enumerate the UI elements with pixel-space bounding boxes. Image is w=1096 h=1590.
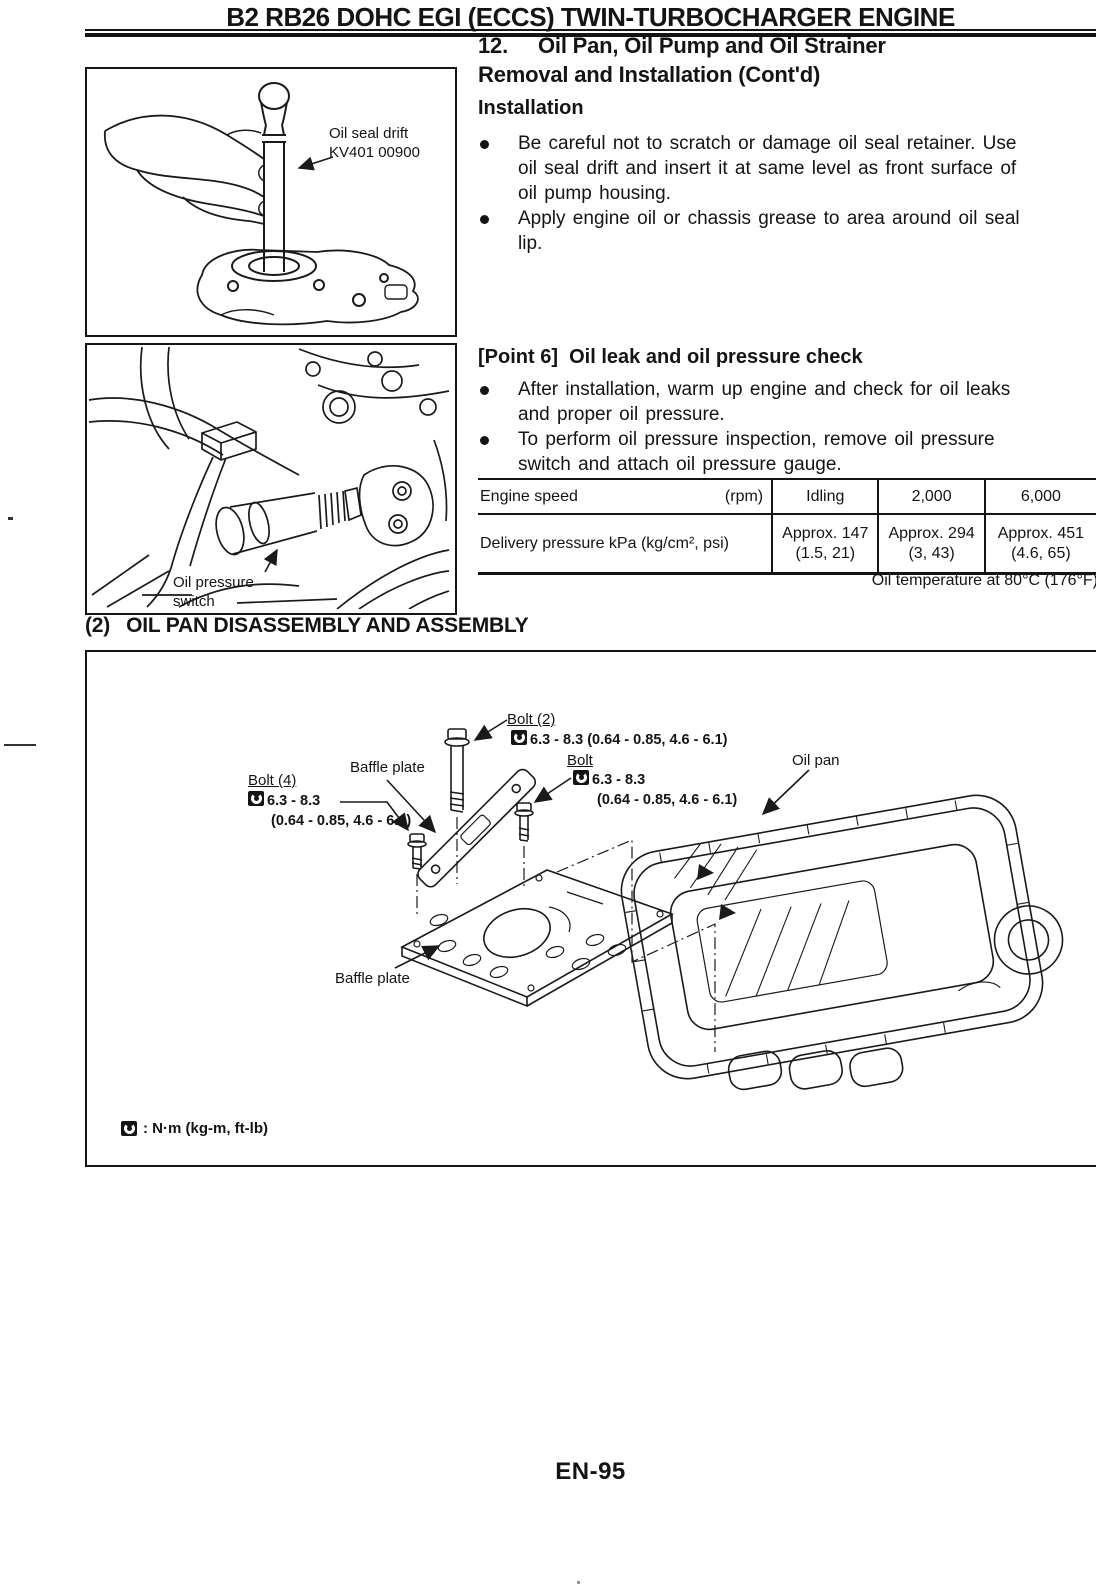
manual-page: B2 RB26 DOHC EGI (ECCS) TWIN-TURBOCHARGE…	[0, 0, 1096, 1590]
baffle-plate-top-label: Baffle plate	[350, 758, 425, 777]
delivery-pressure-label-cell: Delivery pressure kPa (kg/cm², psi)	[478, 515, 771, 572]
bullet-text: After installation, warm up engine and c…	[518, 377, 1096, 427]
oil-pressure-switch-illustration	[87, 345, 451, 609]
torque-icon	[511, 730, 527, 745]
bolt2-label: Bolt (2)	[507, 710, 555, 729]
oil-pressure-table: Engine speed (rpm) Idling 2,000 6,000 De…	[478, 478, 1096, 575]
bolt2-torque-row: 6.3 - 8.3 (0.64 - 0.85, 4.6 - 6.1)	[511, 730, 727, 750]
bullet-icon	[480, 140, 489, 149]
header-rule-thin	[85, 29, 1096, 31]
engine-speed-unit: (rpm)	[725, 487, 763, 507]
figure-oil-seal-drift: Oil seal drift KV401 00900	[85, 67, 457, 337]
margin-mark	[4, 744, 36, 746]
bolt-torque-value-lines: (0.64 - 0.85, 4.6 - 6.1)	[597, 790, 737, 810]
oil-pressure-switch-label: Oil pressure switch	[173, 573, 254, 611]
bolt4-torque-row: 6.3 - 8.3	[248, 791, 320, 811]
torque-legend-text: : N·m (kg-m, ft-lb)	[143, 1120, 268, 1137]
engine-speed-header-cell: Engine speed (rpm)	[478, 480, 771, 513]
bullet-item: To perform oil pressure inspection, remo…	[478, 427, 1096, 477]
assembly-heading-prefix: (2)	[85, 614, 110, 637]
table-header-row: Engine speed (rpm) Idling 2,000 6,000	[478, 480, 1096, 515]
speed-col-2000: 2,000	[877, 480, 983, 513]
pressure-value-6000: Approx. 451 (4.6, 65)	[984, 515, 1096, 572]
bullet-icon	[480, 215, 489, 224]
oil-seal-drift-label: Oil seal drift KV401 00900	[329, 124, 420, 162]
oil-pan-exploded-illustration	[87, 652, 1096, 1161]
torque-icon	[573, 770, 589, 785]
torque-legend: : N·m (kg-m, ft-lb)	[121, 1120, 268, 1137]
margin-mark	[8, 517, 13, 520]
section-title-text: Oil Pan, Oil Pump and Oil Strainer	[538, 33, 886, 58]
bullet-item: After installation, warm up engine and c…	[478, 377, 1096, 427]
bolt-torque-row: 6.3 - 8.3	[573, 770, 645, 790]
bullet-text: Apply engine oil or chassis grease to ar…	[518, 206, 1096, 256]
installation-bullets: Be careful not to scratch or damage oil …	[478, 131, 1096, 256]
assembly-heading-text: OIL PAN DISASSEMBLY AND ASSEMBLY	[126, 614, 528, 637]
table-data-row: Delivery pressure kPa (kg/cm², psi) Appr…	[478, 515, 1096, 572]
pressure-value-2000: Approx. 294 (3, 43)	[877, 515, 983, 572]
installation-heading: Installation	[478, 97, 584, 120]
point6-heading: [Point 6] Oil leak and oil pressure chec…	[478, 346, 863, 369]
point6-label: [Point 6]	[478, 346, 558, 368]
assembly-section-heading: (2)OIL PAN DISASSEMBLY AND ASSEMBLY	[85, 614, 528, 638]
bolt4-torque-value-lines: (0.64 - 0.85, 4.6 - 6.1)	[271, 811, 411, 831]
bolt-torque-value-line1: 6.3 - 8.3	[592, 770, 645, 790]
bolt4-label: Bolt (4)	[248, 771, 296, 790]
section-title-line1: 12.Oil Pan, Oil Pump and Oil Strainer	[478, 33, 886, 59]
torque-icon	[248, 791, 264, 806]
figure-oil-pressure-switch: Oil pressure switch	[85, 343, 457, 615]
page-number: EN-95	[85, 1458, 1096, 1486]
section-title-line2: Removal and Installation (Cont'd)	[478, 62, 820, 88]
oil-temperature-footnote: Oil temperature at 80°C (176°F)	[478, 572, 1096, 590]
figure-oil-pan-exploded: Bolt (2) 6.3 - 8.3 (0.64 - 0.85, 4.6 - 6…	[85, 650, 1096, 1167]
bullet-text: Be careful not to scratch or damage oil …	[518, 131, 1096, 206]
bolt4-torque-value-line1: 6.3 - 8.3	[267, 791, 320, 811]
scan-speck	[577, 1581, 580, 1584]
engine-speed-label: Engine speed	[480, 487, 578, 507]
oil-seal-drift-illustration	[87, 69, 451, 331]
speed-col-6000: 6,000	[984, 480, 1096, 513]
bolt2-torque-value: 6.3 - 8.3 (0.64 - 0.85, 4.6 - 6.1)	[530, 730, 727, 750]
bolt-label: Bolt	[567, 751, 593, 770]
section-number: 12.	[478, 33, 538, 59]
oil-pan-label: Oil pan	[792, 751, 840, 770]
bullet-item: Apply engine oil or chassis grease to ar…	[478, 206, 1096, 256]
torque-icon	[121, 1121, 137, 1136]
baffle-plate-bottom-label: Baffle plate	[335, 969, 410, 988]
bullet-icon	[480, 386, 489, 395]
bullet-item: Be careful not to scratch or damage oil …	[478, 131, 1096, 206]
bullet-icon	[480, 436, 489, 445]
point6-title: Oil leak and oil pressure check	[569, 346, 862, 368]
point6-bullets: After installation, warm up engine and c…	[478, 377, 1096, 477]
speed-col-idling: Idling	[771, 480, 877, 513]
delivery-pressure-label: Delivery pressure kPa (kg/cm², psi)	[480, 534, 729, 554]
bullet-text: To perform oil pressure inspection, remo…	[518, 427, 1096, 477]
pressure-value-idling: Approx. 147 (1.5, 21)	[771, 515, 877, 572]
